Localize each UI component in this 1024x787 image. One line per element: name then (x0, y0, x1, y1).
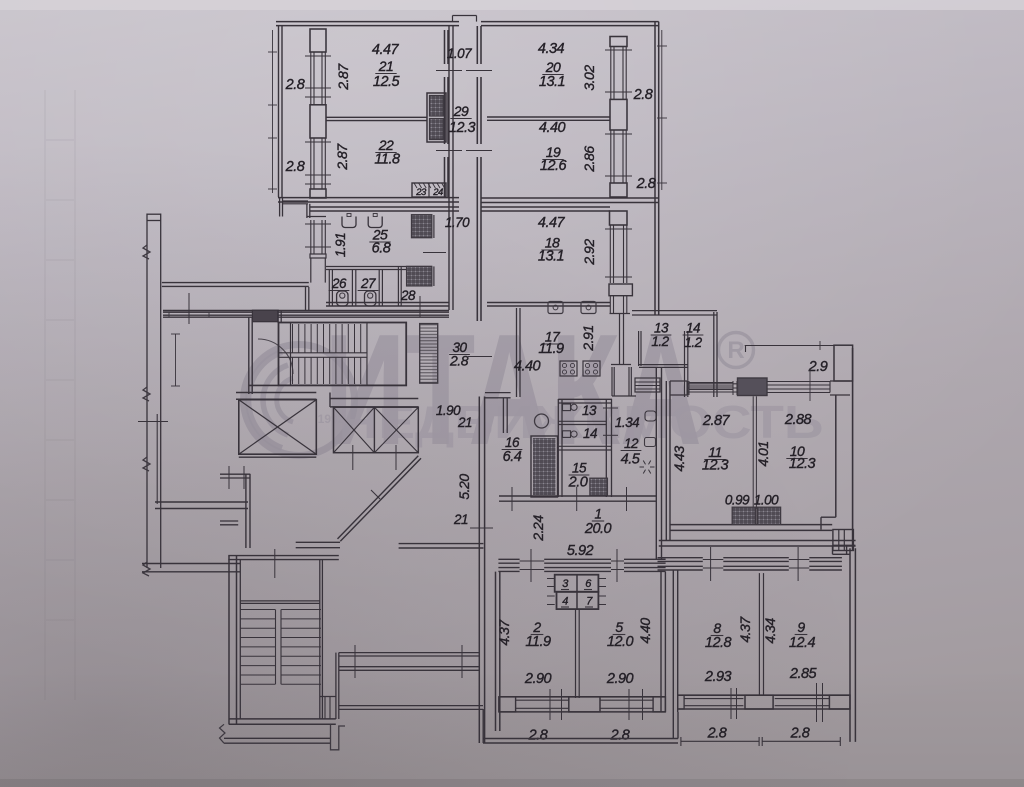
svg-text:24: 24 (432, 187, 443, 198)
svg-text:6.8: 6.8 (372, 241, 391, 257)
svg-text:27: 27 (360, 276, 376, 291)
svg-text:2.8: 2.8 (707, 726, 727, 742)
svg-text:12.5: 12.5 (373, 74, 401, 90)
svg-text:12.0: 12.0 (607, 634, 634, 650)
svg-text:21: 21 (378, 58, 394, 74)
svg-text:2.93: 2.93 (704, 669, 732, 685)
svg-text:2.8: 2.8 (528, 728, 548, 744)
svg-text:13: 13 (582, 403, 597, 418)
svg-text:16: 16 (505, 435, 520, 450)
svg-text:5.92: 5.92 (567, 543, 594, 559)
svg-text:4.47: 4.47 (538, 215, 566, 231)
svg-text:4.40: 4.40 (637, 618, 653, 644)
svg-text:2.90: 2.90 (524, 671, 552, 687)
svg-text:2.91: 2.91 (580, 325, 596, 351)
svg-text:2.8: 2.8 (285, 159, 305, 175)
svg-text:4.34: 4.34 (762, 618, 778, 644)
svg-text:2.8: 2.8 (610, 728, 630, 744)
svg-text:1.34: 1.34 (615, 415, 639, 430)
svg-text:15: 15 (572, 461, 587, 476)
svg-text:20.0: 20.0 (584, 521, 612, 537)
svg-text:2.90: 2.90 (606, 671, 634, 687)
svg-text:4.43: 4.43 (671, 446, 687, 472)
svg-text:14: 14 (583, 426, 597, 441)
svg-text:4.34: 4.34 (538, 41, 565, 57)
svg-text:28: 28 (400, 288, 416, 303)
svg-text:1.00: 1.00 (754, 493, 779, 508)
svg-text:14: 14 (686, 321, 700, 336)
svg-text:1.91: 1.91 (333, 233, 348, 257)
svg-text:4.47: 4.47 (372, 42, 400, 58)
svg-text:21: 21 (457, 415, 472, 430)
svg-text:2.87: 2.87 (334, 143, 350, 171)
svg-text:12: 12 (624, 436, 639, 451)
svg-text:5.20: 5.20 (456, 474, 472, 500)
svg-text:1.70: 1.70 (445, 215, 470, 230)
svg-text:2.86: 2.86 (581, 146, 597, 173)
svg-text:12.4: 12.4 (789, 635, 816, 651)
svg-text:3.02: 3.02 (581, 65, 597, 91)
svg-text:4.37: 4.37 (737, 616, 753, 643)
svg-text:9: 9 (797, 619, 805, 635)
svg-text:13.1: 13.1 (539, 74, 565, 90)
svg-text:2.9: 2.9 (808, 359, 828, 375)
svg-text:2.85: 2.85 (789, 666, 818, 682)
svg-text:21: 21 (453, 512, 468, 527)
svg-text:26: 26 (331, 276, 347, 291)
svg-text:R: R (727, 337, 744, 364)
svg-text:8: 8 (713, 620, 721, 636)
svg-text:2.87: 2.87 (335, 63, 351, 91)
svg-text:5: 5 (615, 619, 623, 635)
svg-text:2.8: 2.8 (636, 176, 656, 192)
svg-text:2.8: 2.8 (285, 77, 305, 93)
svg-text:1.2: 1.2 (651, 334, 669, 349)
svg-text:2.8: 2.8 (790, 726, 810, 742)
svg-text:2.24: 2.24 (530, 515, 546, 542)
svg-text:4.40: 4.40 (539, 120, 566, 136)
svg-text:12.8: 12.8 (705, 635, 732, 651)
svg-text:4.01: 4.01 (755, 441, 771, 466)
svg-text:1.07: 1.07 (447, 46, 472, 61)
svg-text:4.40: 4.40 (514, 359, 541, 375)
svg-text:1992: 1992 (318, 412, 345, 426)
svg-text:2.8: 2.8 (449, 353, 469, 369)
svg-text:11.9: 11.9 (525, 634, 551, 650)
svg-text:0.99: 0.99 (725, 493, 750, 508)
svg-text:6.4: 6.4 (503, 449, 522, 465)
svg-text:2.92: 2.92 (581, 239, 597, 266)
svg-text:2.88: 2.88 (784, 412, 812, 428)
svg-text:2: 2 (532, 619, 541, 635)
svg-text:1: 1 (594, 507, 601, 522)
svg-text:12.6: 12.6 (540, 158, 568, 174)
svg-text:11.8: 11.8 (374, 152, 400, 168)
svg-text:1.2: 1.2 (684, 335, 702, 350)
svg-text:20: 20 (545, 59, 561, 75)
svg-text:4.5: 4.5 (621, 452, 641, 468)
svg-text:12.3: 12.3 (449, 120, 476, 136)
svg-text:4.37: 4.37 (496, 619, 512, 646)
svg-text:2.0: 2.0 (568, 475, 588, 491)
svg-text:12.3: 12.3 (702, 458, 729, 474)
svg-text:23: 23 (415, 187, 427, 198)
svg-text:2.87: 2.87 (702, 413, 731, 429)
svg-text:11.9: 11.9 (538, 341, 564, 357)
svg-text:2.8: 2.8 (633, 87, 653, 103)
svg-text:13.1: 13.1 (538, 249, 564, 265)
svg-text:12.3: 12.3 (789, 456, 816, 472)
svg-text:4: 4 (562, 596, 568, 608)
svg-text:29: 29 (453, 103, 469, 119)
